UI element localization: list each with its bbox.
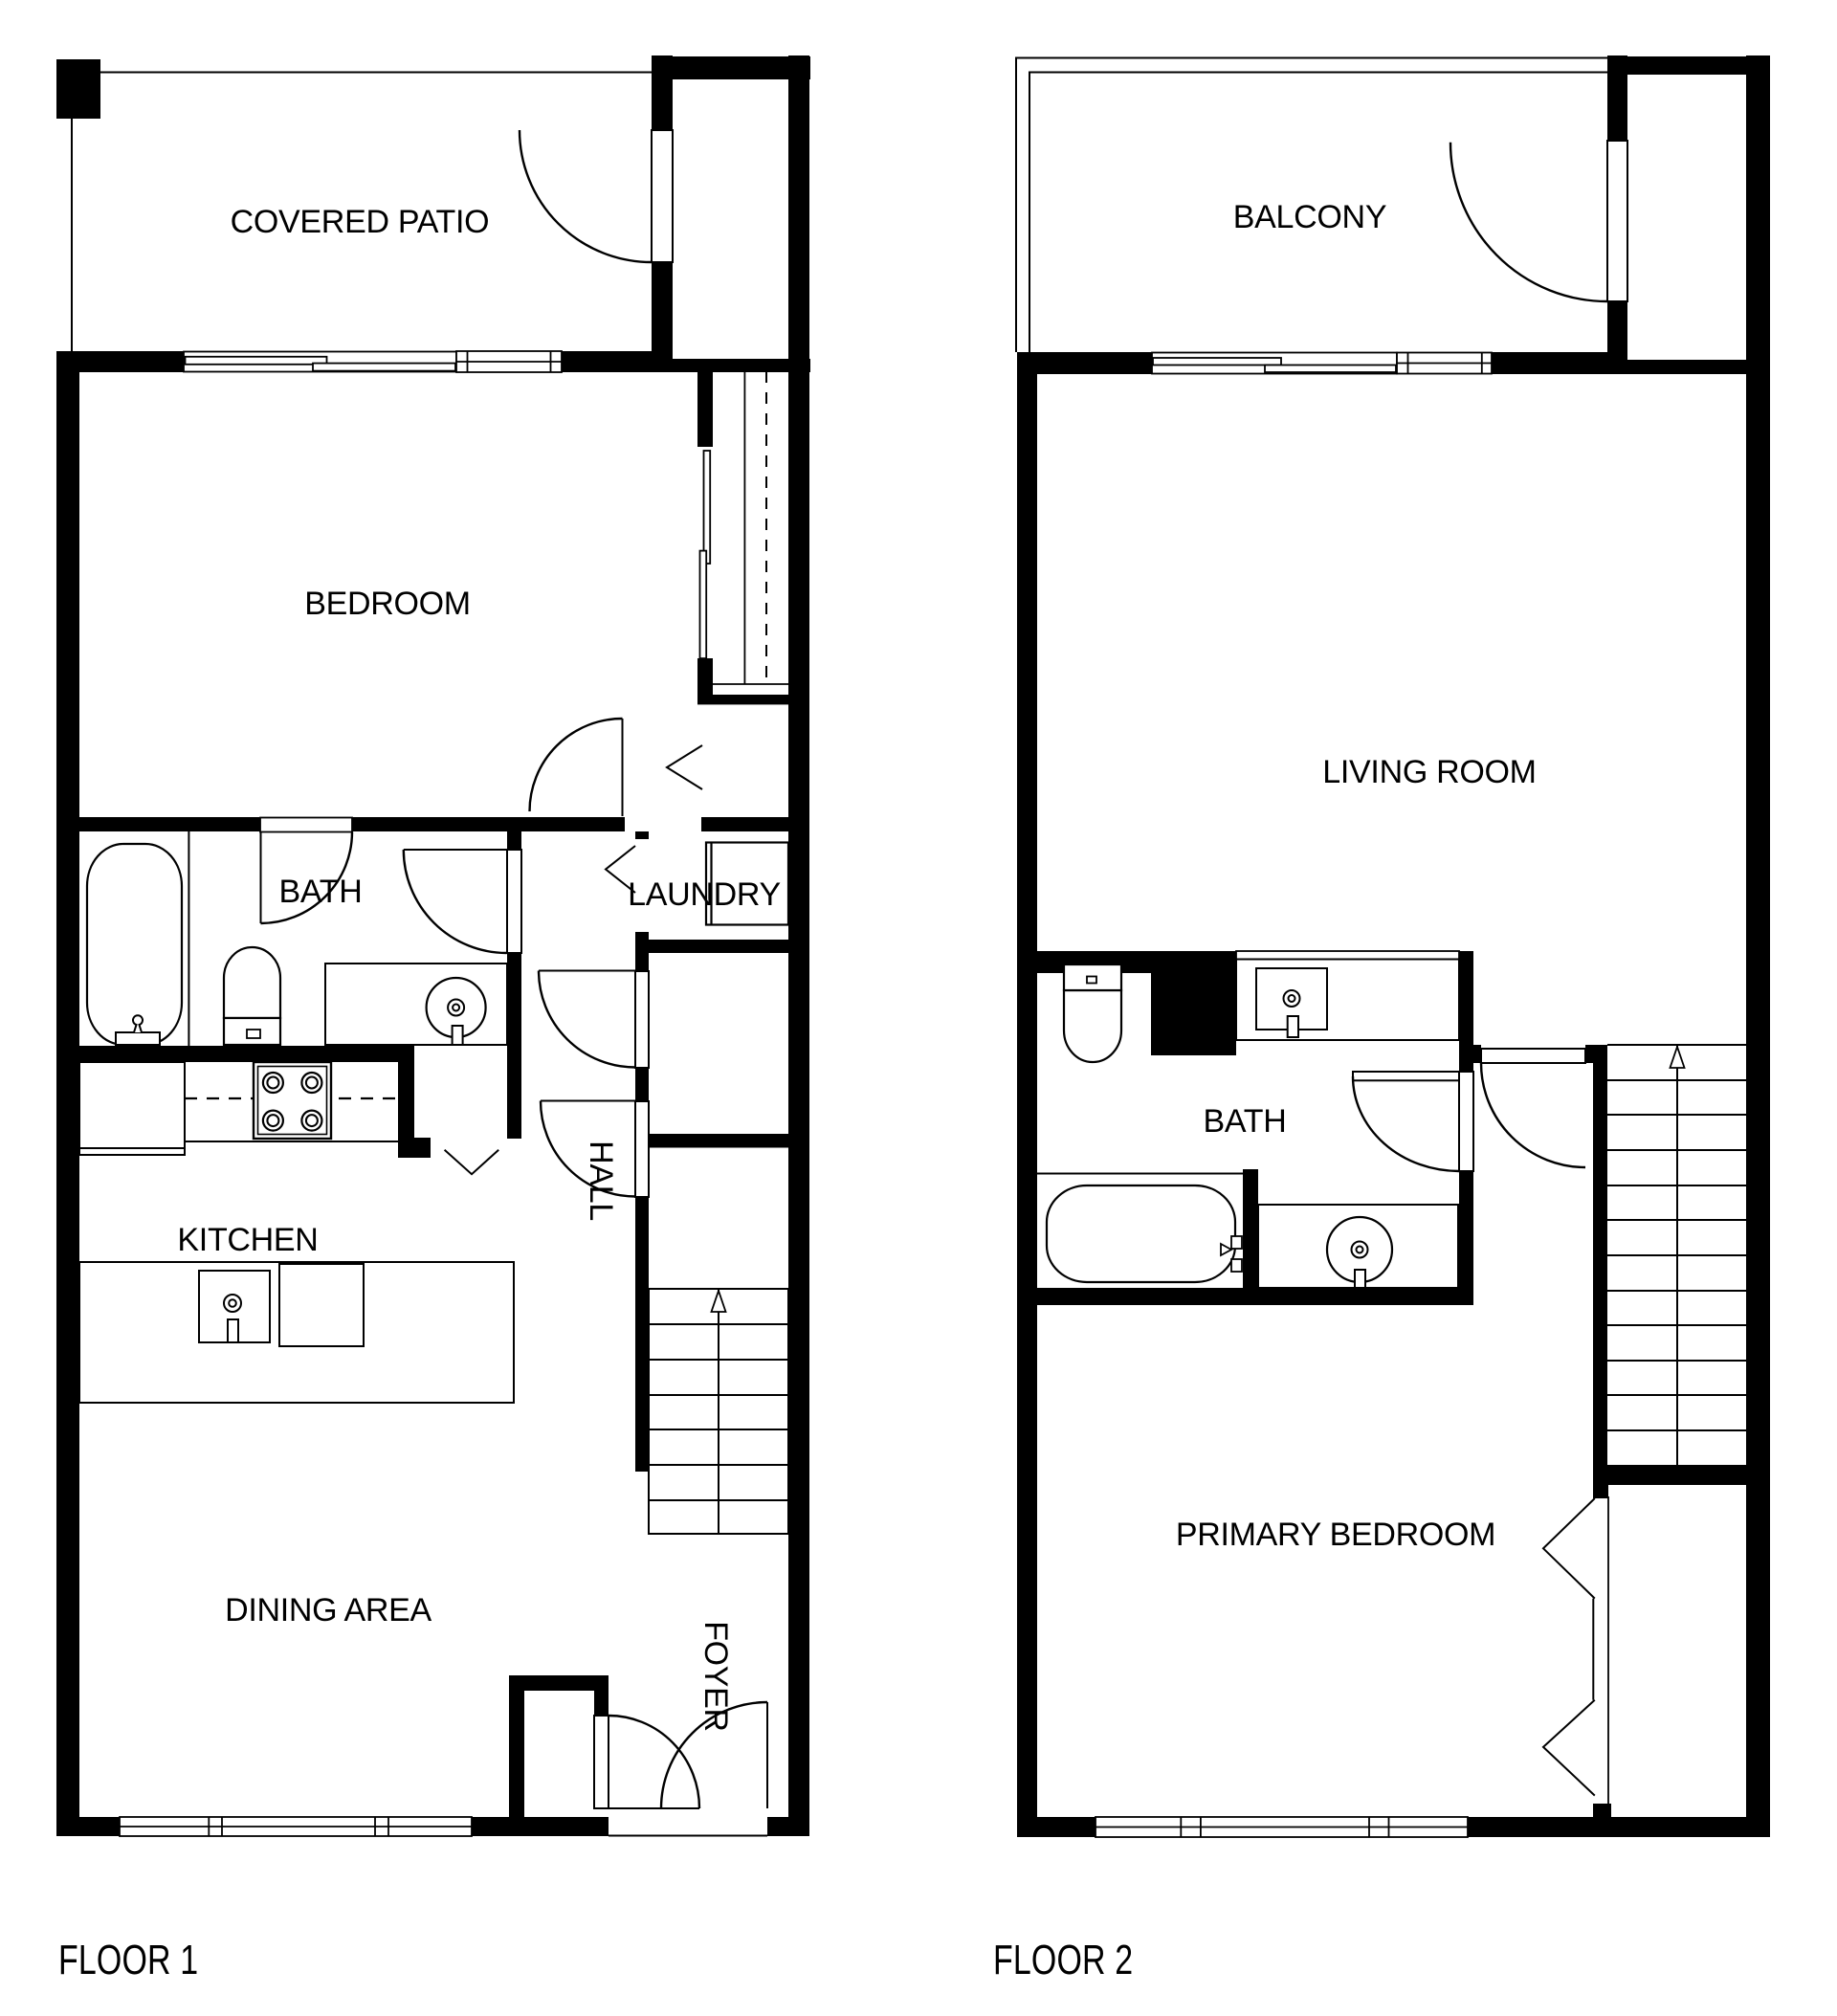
svg-text:COVERED PATIO: COVERED PATIO: [231, 204, 490, 240]
svg-text:BATH: BATH: [1204, 1103, 1287, 1140]
svg-text:FLOOR 2: FLOOR 2: [993, 1938, 1133, 1983]
svg-text:BALCONY: BALCONY: [1233, 199, 1386, 235]
svg-text:BEDROOM: BEDROOM: [304, 586, 471, 622]
svg-text:DINING AREA: DINING AREA: [225, 1592, 432, 1628]
svg-text:PRIMARY BEDROOM: PRIMARY BEDROOM: [1176, 1517, 1495, 1553]
svg-text:FLOOR 1: FLOOR 1: [58, 1938, 198, 1983]
svg-text:BATH: BATH: [279, 874, 363, 910]
svg-text:KITCHEN: KITCHEN: [177, 1222, 318, 1258]
svg-text:HALL: HALL: [583, 1141, 619, 1221]
svg-text:LIVING ROOM: LIVING ROOM: [1322, 754, 1536, 790]
svg-text:LAUNDRY: LAUNDRY: [628, 876, 781, 913]
